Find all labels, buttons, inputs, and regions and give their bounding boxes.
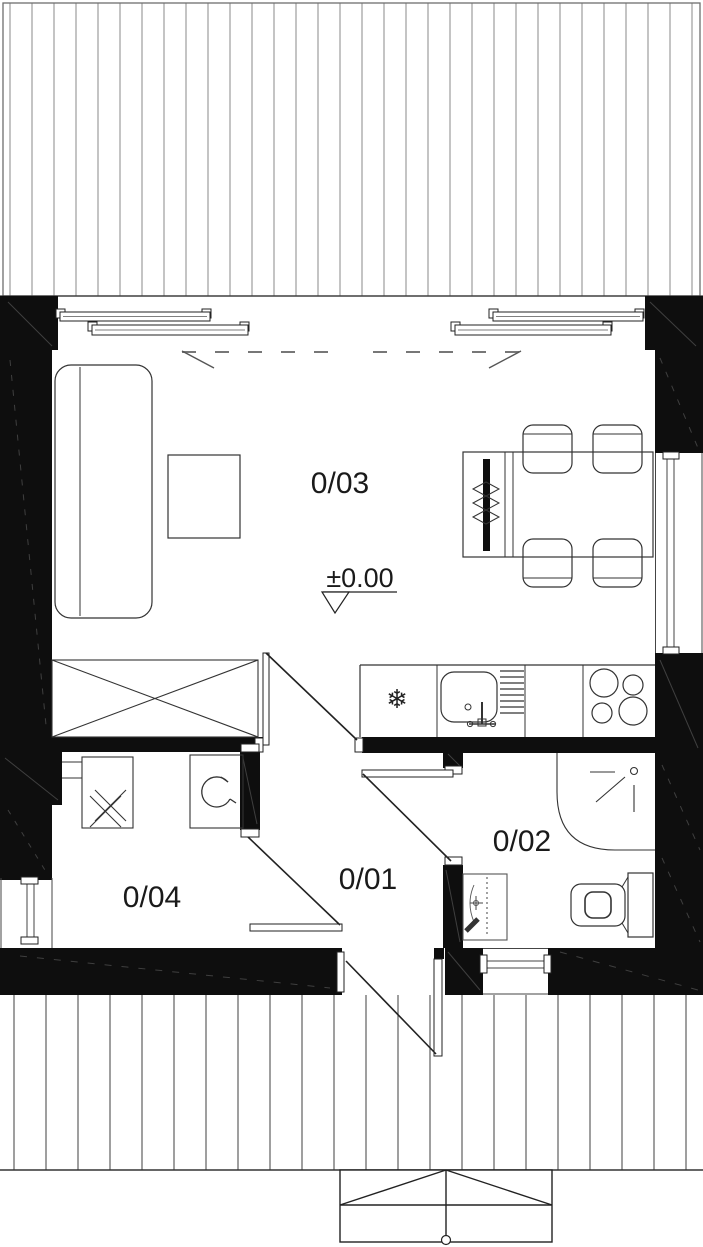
washing-machine [62, 757, 133, 828]
coffee-table [168, 455, 240, 538]
arrow-right-icon [489, 351, 521, 368]
floor-plan: ❄ [0, 0, 703, 1247]
door-swing [363, 774, 451, 861]
floor-plan-drawing: ❄ [0, 0, 703, 1247]
window-bath-bottom [480, 949, 551, 995]
door-bath [362, 770, 453, 861]
label-bath: 0/02 [493, 825, 551, 858]
wall-entry-hinge [434, 948, 444, 959]
washer-x-icon [90, 790, 126, 827]
slide-direction-arrows [182, 351, 521, 368]
arrow-left-icon [182, 351, 214, 368]
door-living-hall [263, 653, 357, 745]
toilet [571, 873, 653, 937]
door-utility [248, 837, 342, 931]
freezer-icon: ❄ [386, 684, 408, 714]
door-swing [248, 837, 340, 925]
chair [523, 425, 572, 473]
wall-corner-top-right [645, 296, 703, 350]
window-utility-left [1, 877, 52, 948]
dryer [190, 755, 243, 828]
label-hall: 0/01 [339, 863, 397, 896]
deck-bottom [0, 995, 703, 1170]
chair [593, 425, 642, 473]
dining-table [463, 452, 653, 557]
sofa [55, 365, 152, 618]
door-leaf [362, 770, 453, 777]
wall-right-upper [655, 350, 703, 453]
dining-set [463, 425, 653, 587]
wall-bottom-right [548, 948, 703, 995]
deck-top [3, 3, 700, 296]
door-leaf [250, 924, 342, 931]
entrance-steps [340, 1170, 552, 1245]
washbasin [463, 874, 507, 940]
chair [593, 539, 642, 587]
wall-kitchen-bath [362, 737, 655, 753]
level-text: ±0.00 [326, 563, 393, 593]
level-triangle-icon [322, 592, 349, 613]
wall-right-bath [655, 752, 703, 948]
level-marker: ±0.00 [322, 563, 397, 613]
wall-right-mid [655, 653, 703, 752]
wardrobe [52, 660, 258, 737]
sliding-door-top [56, 309, 644, 335]
hob [590, 669, 647, 725]
shower [557, 753, 655, 850]
label-utility: 0/04 [123, 881, 181, 914]
tap-handle-icon [466, 919, 478, 931]
wall-living-utility [0, 737, 263, 752]
chair [523, 539, 572, 587]
kitchen-sink [441, 672, 497, 727]
window-right [656, 452, 703, 654]
radiator [473, 459, 499, 551]
shower-head-icon [596, 777, 625, 802]
label-living: 0/03 [311, 467, 369, 500]
door-swing [266, 653, 357, 740]
door-leaf [263, 653, 269, 745]
wall-bottom-left [0, 948, 342, 995]
rotate-arrow-icon [202, 777, 230, 807]
door-leaf [434, 959, 442, 1056]
wall-left [0, 350, 52, 752]
sink-drainer [500, 671, 524, 713]
